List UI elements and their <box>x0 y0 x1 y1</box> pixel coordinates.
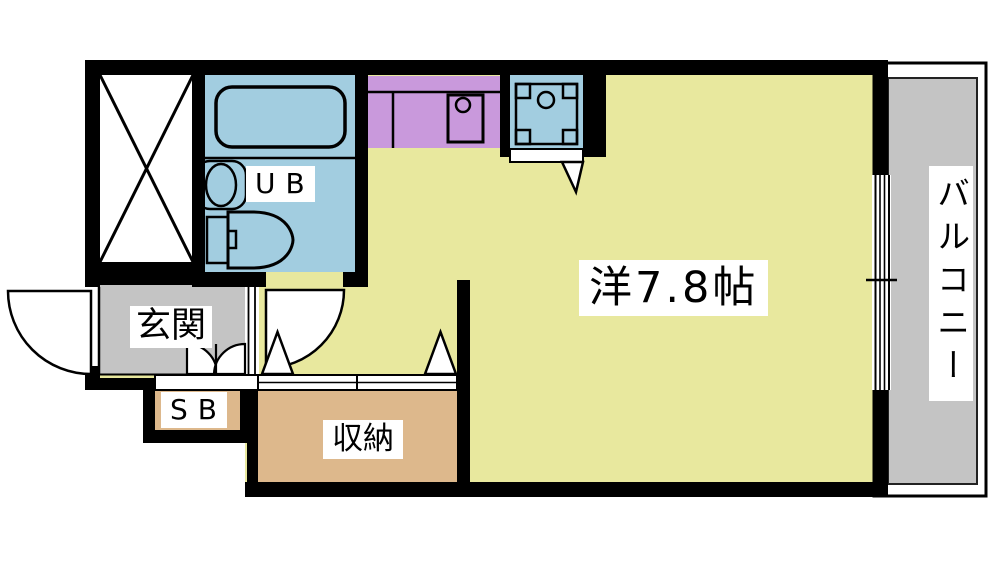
wall-segment <box>245 482 888 497</box>
unit-bath-label: UB <box>246 166 315 202</box>
wall-segment <box>85 60 100 287</box>
wall-segment <box>457 280 470 496</box>
balcony-label: バルコニー <box>929 166 973 401</box>
entrance-door-swing-icon <box>8 291 91 374</box>
floor-plan: 玄関 SB UB 洋7.8帖 収納 バルコニー <box>0 0 1000 562</box>
pan-threshold <box>510 149 583 162</box>
entrance-step-divider <box>245 287 259 375</box>
entrance-label: 玄関 <box>130 306 212 348</box>
storage-label: 収納 <box>323 420 403 459</box>
wall-segment <box>583 75 606 157</box>
shoe-box-label: SB <box>161 392 227 428</box>
kitchen-counter <box>368 76 500 148</box>
washing-machine-pan-area <box>510 75 583 149</box>
shoe-box-threshold <box>155 375 258 390</box>
double-door-icon <box>187 344 245 374</box>
wall-segment <box>85 60 888 75</box>
wall-segment <box>143 430 252 443</box>
wall-segment <box>875 390 888 497</box>
wall-segment <box>355 60 368 287</box>
wall-segment <box>85 262 205 285</box>
wall-segment <box>875 60 888 175</box>
floor-plan-drawing <box>0 0 1000 562</box>
wall-segment <box>500 75 510 157</box>
closet-track <box>258 375 457 390</box>
main-room-label: 洋7.8帖 <box>579 260 768 316</box>
wall-segment <box>192 272 266 287</box>
